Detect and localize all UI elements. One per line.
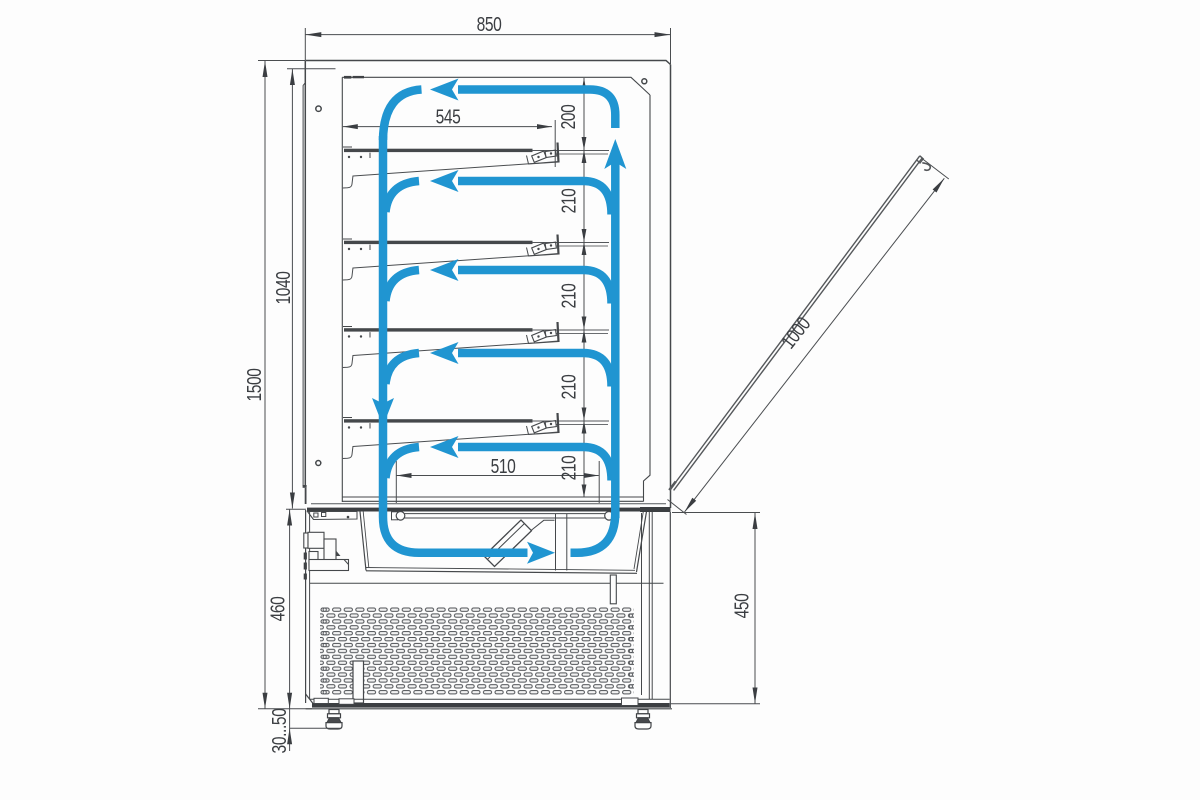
svg-text:510: 510 (491, 455, 516, 477)
svg-text:210: 210 (558, 188, 580, 213)
svg-text:545: 545 (436, 106, 461, 128)
svg-text:200: 200 (557, 104, 579, 129)
svg-text:210: 210 (558, 374, 580, 399)
svg-text:30...50: 30...50 (268, 708, 290, 753)
svg-text:210: 210 (558, 283, 580, 308)
svg-text:1040: 1040 (272, 271, 294, 305)
svg-text:460: 460 (267, 596, 289, 621)
svg-text:450: 450 (731, 593, 753, 618)
svg-text:1500: 1500 (243, 368, 265, 402)
svg-text:210: 210 (558, 455, 580, 480)
svg-text:850: 850 (477, 13, 502, 35)
